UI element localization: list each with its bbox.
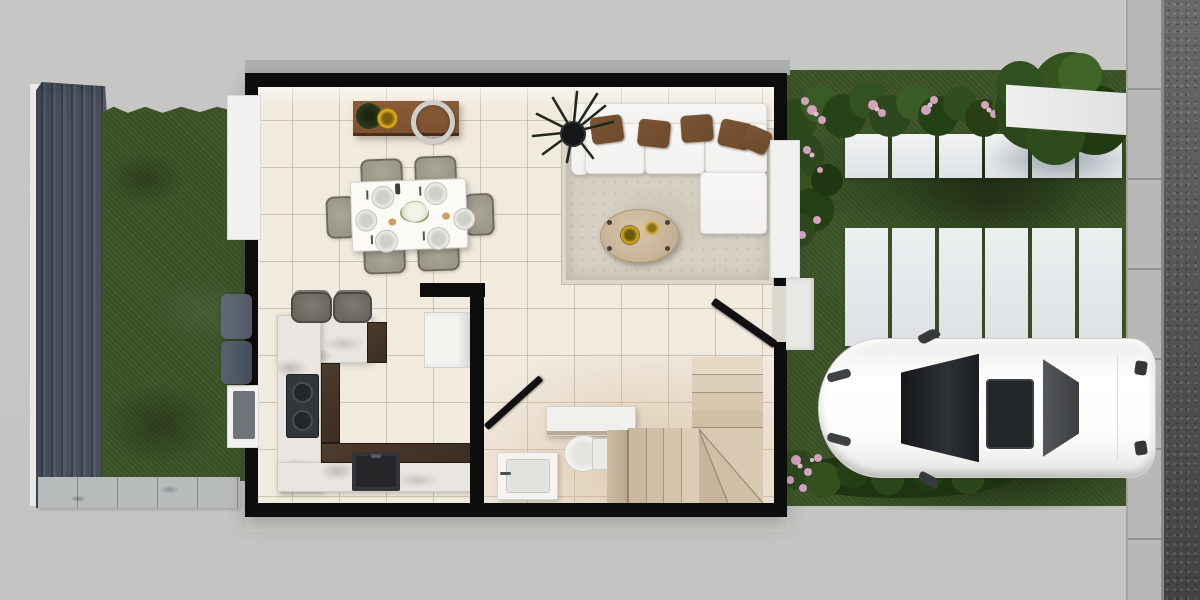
bathroom-sink — [497, 452, 558, 500]
rear-window — [1043, 355, 1079, 461]
burner — [292, 410, 313, 431]
stair-tread — [692, 357, 763, 375]
kitchen-sink — [352, 452, 400, 491]
cutlery — [371, 235, 373, 244]
burner — [292, 382, 313, 403]
wall-west-lower — [245, 448, 258, 505]
paver-strip — [38, 477, 240, 508]
headlight — [826, 432, 852, 447]
headlight — [826, 368, 852, 383]
sunroof — [986, 379, 1034, 449]
windshield — [901, 349, 979, 467]
wall-north — [245, 73, 787, 87]
coffee-table — [600, 209, 679, 263]
throw-pillow — [680, 114, 714, 143]
stair-tread — [692, 393, 763, 411]
espresso-cabinet-inner-v — [321, 363, 340, 443]
cooktop — [286, 374, 319, 438]
stairs-upper-flight — [692, 357, 763, 428]
table-leg — [665, 246, 670, 251]
table-leg — [607, 246, 612, 251]
stair-tread — [646, 428, 664, 503]
stair-tread — [663, 428, 681, 503]
dining-set — [320, 149, 496, 277]
stair-tread — [628, 428, 646, 503]
car-body — [818, 338, 1156, 478]
table-leg — [607, 220, 612, 225]
living-window — [770, 140, 800, 278]
driveway-strip — [939, 228, 982, 346]
wall-east-upper — [774, 85, 787, 140]
driveway-strip — [1079, 228, 1122, 346]
house — [245, 73, 787, 517]
trunk-seam — [1117, 355, 1118, 461]
interior-wall-v — [470, 283, 484, 504]
stair-tread — [681, 428, 699, 503]
faucet — [500, 472, 511, 475]
stairs-winder — [698, 428, 763, 503]
decor-bowl — [620, 225, 640, 245]
faucet — [371, 454, 381, 458]
table-leg — [665, 220, 670, 225]
side-lawn — [102, 103, 246, 481]
stair-tread — [692, 375, 763, 393]
decor-bowl — [645, 221, 659, 235]
dining-window — [227, 95, 261, 240]
window-sill-object — [233, 391, 255, 439]
front-door-threshold — [772, 286, 786, 342]
bar-stool — [291, 292, 332, 323]
house-exterior-band-bottom — [245, 517, 790, 532]
wall-east-lower — [774, 342, 787, 505]
sofa-chaise — [700, 172, 767, 234]
driveway-strip — [892, 228, 935, 346]
bar-stool — [333, 292, 372, 323]
stair-partition — [607, 430, 628, 503]
ac-unit — [221, 341, 252, 384]
cutlery — [419, 187, 421, 196]
yellow-bowl — [377, 108, 398, 129]
ac-unit — [221, 294, 252, 339]
wall-south — [245, 503, 787, 517]
stairs-lower-flight — [628, 428, 698, 503]
street-curb — [1126, 0, 1164, 600]
parked-car — [818, 332, 1156, 484]
potted-palm — [527, 88, 617, 168]
bottle — [395, 183, 400, 194]
floor-plan-render — [0, 0, 1200, 600]
driveway-strip-row — [845, 228, 1130, 346]
throw-pillow — [637, 118, 672, 148]
cutlery — [366, 190, 368, 199]
sink-basin — [506, 459, 550, 493]
driveway-strip — [985, 228, 1028, 346]
fridge — [424, 312, 470, 368]
taillight — [1134, 440, 1148, 456]
cutlery — [423, 231, 425, 240]
front-porch-pad — [786, 278, 814, 350]
asphalt-road — [1164, 0, 1200, 600]
espresso-cabinet-end — [367, 322, 387, 363]
stair-tread — [692, 410, 763, 428]
taillight — [1134, 360, 1148, 376]
driveway-strip — [1032, 228, 1075, 346]
wreath-decor — [411, 100, 455, 144]
